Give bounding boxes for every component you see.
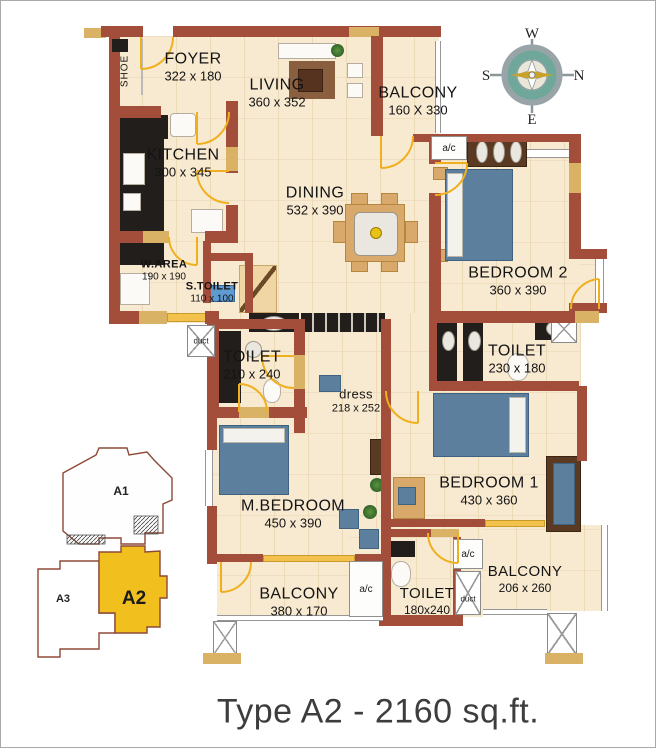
room-dims: 110 x 100 [186, 294, 239, 306]
wall-segment [577, 386, 587, 461]
key-plan: A1 A3 A2 [26, 444, 181, 669]
room-name: TOILET [223, 348, 281, 367]
sofa [278, 43, 336, 59]
room-name: S.TOILET [186, 280, 239, 293]
chair-mbedroom-2 [359, 529, 379, 549]
wall-segment [207, 554, 263, 562]
wall-segment [120, 106, 161, 118]
plant-mbedroom [363, 505, 377, 519]
keyplan-unit-a2-highlighted [99, 546, 167, 633]
room-name: KITCHEN [146, 146, 219, 165]
keyplan-stairs-2 [67, 535, 105, 544]
room-dims: 360 x 352 [248, 95, 305, 111]
shoe-rack [112, 39, 128, 52]
compass-outer-ring [505, 48, 559, 102]
room-dims: 300 x 345 [146, 165, 219, 181]
lintel [575, 311, 599, 323]
wall-segment [173, 26, 441, 37]
room-dims: 322 x 180 [164, 69, 221, 85]
wall-segment [433, 311, 575, 323]
armchair-1 [347, 63, 363, 78]
wardrobe-b1-shelves [553, 463, 575, 525]
kitchen-appliance [123, 193, 141, 211]
pillows-bedroom1 [509, 397, 526, 453]
room-label-warea: W.AREA 190 x 190 [141, 258, 187, 283]
room-dims: 180x240 [400, 603, 455, 617]
room-name: BEDROOM 1 [439, 474, 539, 493]
shoe-closet-label: SHOE [120, 55, 131, 87]
kitchen-counter-top [120, 115, 168, 139]
room-label-kitchen: KITCHEN 300 x 345 [146, 146, 219, 181]
keyplan-unit-a3 [38, 561, 115, 657]
lintel [143, 231, 169, 243]
room-label-foyer: FOYER 322 x 180 [164, 50, 221, 85]
wall-segment [569, 142, 581, 252]
room-label-living: LIVING 360 x 352 [248, 76, 305, 111]
room-dims: 190 x 190 [141, 272, 187, 284]
compass-s: S [482, 68, 490, 84]
shoe-closet-divider [141, 39, 143, 95]
plan-title: Type A2 - 2160 sq.ft. [217, 693, 539, 732]
wall-segment [109, 311, 139, 324]
dining-centerpiece [370, 227, 382, 239]
kitchen-sink [123, 153, 145, 185]
room-name: TOILET [400, 585, 455, 603]
duct-label-bottom: duct [460, 595, 475, 604]
toilet-b-wc [391, 561, 411, 587]
window-sill [485, 520, 545, 527]
room-name: dress [332, 387, 380, 403]
room-label-bedroom1: BEDROOM 1 430 x 360 [439, 474, 539, 509]
wall-segment [101, 26, 143, 37]
stove [191, 209, 223, 233]
ac-label: a/c [442, 143, 455, 154]
room-dims: 450 x 390 [241, 516, 345, 532]
window-mbedroom [205, 450, 213, 506]
wall-segment [385, 529, 431, 537]
crockery-shelf [301, 313, 385, 332]
room-name: M.BEDROOM [241, 497, 345, 516]
wardrobe-bedroom1 [546, 456, 581, 532]
compass-hub [529, 72, 535, 78]
room-label-toilet-ml: TOILET 210 x 240 [223, 348, 281, 383]
room-dims: 230 x 180 [488, 361, 546, 377]
lintel [226, 147, 238, 171]
wardrobe-item [493, 141, 505, 163]
wardrobe-item [510, 141, 522, 163]
keyplan-unit-a1 [63, 448, 172, 544]
room-label-balcony-bottom: BALCONY 380 x 170 [259, 585, 338, 620]
lintel [139, 311, 167, 324]
wall-segment [433, 381, 579, 391]
balcony-right-bottom-railing [483, 609, 547, 615]
room-dims: 210 x 240 [223, 367, 281, 383]
room-dims: 206 x 260 [488, 581, 563, 595]
column-base [545, 653, 583, 664]
room-name: BALCONY [259, 585, 338, 604]
toilet-b-counter [387, 541, 415, 557]
keyplan-label-a2: A2 [122, 588, 146, 609]
wall-segment [245, 253, 253, 313]
desk-chair [398, 487, 416, 505]
dining-chair-right [405, 221, 418, 243]
compass: W S N E [477, 23, 587, 127]
toilet-mr-mirror-1 [442, 331, 455, 351]
room-dims: 532 x 390 [286, 203, 344, 219]
room-dims: 430 x 360 [439, 493, 539, 509]
compass-w: W [525, 26, 540, 42]
room-name: LIVING [248, 76, 305, 95]
room-name: DINING [286, 184, 344, 203]
compass-needle [510, 71, 554, 79]
lintel [431, 529, 459, 537]
window-sill [263, 555, 355, 562]
room-label-balcony-top: BALCONY 160 X 330 [378, 84, 457, 119]
ac-ledge-bottom-left: a/c [349, 561, 383, 617]
compass-n: N [574, 68, 585, 84]
compass-teal-ring [512, 55, 552, 95]
room-label-bedroom2: BEDROOM 2 360 x 390 [468, 264, 568, 299]
room-dims: 360 x 390 [468, 283, 568, 299]
compass-face [517, 60, 547, 90]
plant-living [331, 44, 344, 57]
column-base [203, 653, 241, 664]
wall-segment [429, 313, 437, 391]
wall-segment [207, 408, 217, 450]
room-dims: 380 x 170 [259, 604, 338, 620]
lintel [239, 407, 269, 418]
duct-label-left: duct [193, 337, 208, 346]
floorplan-canvas: a/c a/c a/c W S N E [0, 0, 656, 748]
pillows-mbedroom [223, 428, 285, 443]
armchair-2 [347, 83, 363, 98]
keyplan-label-a1: A1 [113, 484, 129, 498]
room-name: TOILET [488, 342, 546, 361]
wall-segment [294, 389, 305, 433]
toilet-mr-mirror-2 [468, 331, 481, 351]
room-label-balcony-right: BALCONY 206 x 260 [488, 563, 563, 595]
keyplan-stairs-1 [134, 516, 158, 534]
room-name: BALCONY [378, 84, 457, 103]
ac-label: a/c [461, 549, 474, 560]
room-name: BEDROOM 2 [468, 264, 568, 283]
room-name: FOYER [164, 50, 221, 69]
wall-segment [214, 319, 298, 329]
lintel [569, 163, 581, 193]
fridge [170, 113, 196, 137]
keyplan-label-a3: A3 [56, 593, 70, 605]
duct-shaft-bottom [455, 571, 481, 615]
compass-e: E [527, 112, 536, 127]
wardrobe-item [476, 141, 488, 163]
balcony-right-railing [601, 525, 608, 611]
room-dims: 160 X 330 [378, 103, 457, 119]
wall-segment [569, 249, 607, 259]
compass-star [517, 60, 547, 90]
ac-ledge-bottom-right: a/c [453, 539, 483, 569]
room-label-dining: DINING 532 x 390 [286, 184, 344, 219]
column-balcony-right [547, 613, 577, 655]
room-label-toilet-bottom: TOILET 180x240 [400, 585, 455, 617]
wall-segment [429, 193, 441, 313]
room-label-dress: dress 218 x 252 [332, 387, 380, 416]
room-name: BALCONY [488, 563, 563, 581]
ac-label: a/c [359, 584, 372, 595]
wall-segment [294, 319, 305, 355]
pillows-bedroom2 [447, 173, 463, 257]
wall-segment [109, 231, 143, 243]
room-label-toilet-mr: TOILET 230 x 180 [488, 342, 546, 377]
column-balcony-left [213, 621, 237, 655]
lintel [294, 355, 305, 389]
room-label-mbedroom: M.BEDROOM 450 x 390 [241, 497, 345, 532]
wall-segment [109, 31, 120, 318]
wall-segment [385, 519, 485, 527]
window-sill [167, 313, 207, 322]
wall-segment [381, 339, 391, 561]
toilet-ml-wc [263, 379, 281, 403]
ac-ledge-top: a/c [431, 136, 467, 160]
room-name: W.AREA [141, 258, 187, 271]
room-dims: 218 x 252 [332, 402, 380, 415]
room-label-stoilet: S.TOILET 110 x 100 [186, 280, 239, 305]
window-bedroom2-top [527, 149, 571, 158]
window-bedroom2-bay [595, 259, 604, 303]
